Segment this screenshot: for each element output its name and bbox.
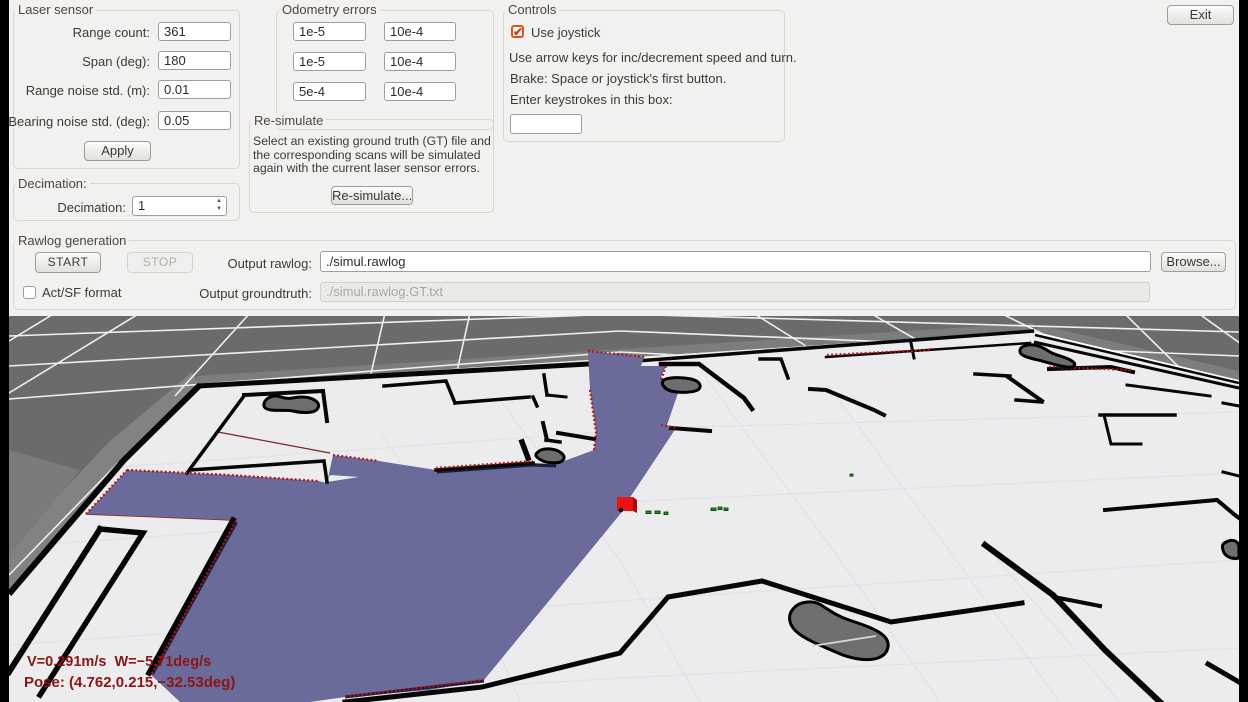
svg-text:Pose: (4.762,0.215,−32.53deg): Pose: (4.762,0.215,−32.53deg): [24, 674, 235, 691]
svg-text:V=0.291m/s W=−5.71deg/s: V=0.291m/s W=−5.71deg/s: [27, 654, 211, 670]
